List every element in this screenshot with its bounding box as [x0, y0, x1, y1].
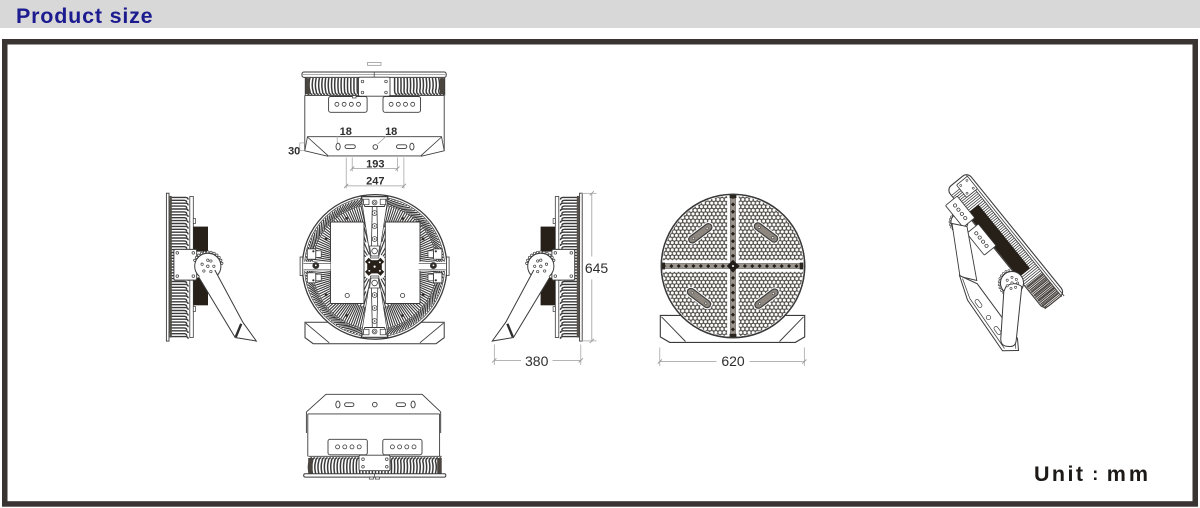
svg-text::: : [1092, 464, 1098, 484]
svg-text:645: 645 [585, 260, 609, 276]
svg-text:18: 18 [385, 126, 397, 138]
svg-text:247: 247 [366, 176, 384, 188]
svg-text:30: 30 [288, 146, 300, 158]
svg-text:380: 380 [525, 353, 549, 369]
svg-text:193: 193 [366, 158, 384, 170]
svg-text:Unit: Unit [1034, 462, 1085, 486]
svg-text:mm: mm [1107, 462, 1151, 486]
svg-text:18: 18 [340, 126, 352, 138]
svg-text:620: 620 [721, 353, 745, 369]
